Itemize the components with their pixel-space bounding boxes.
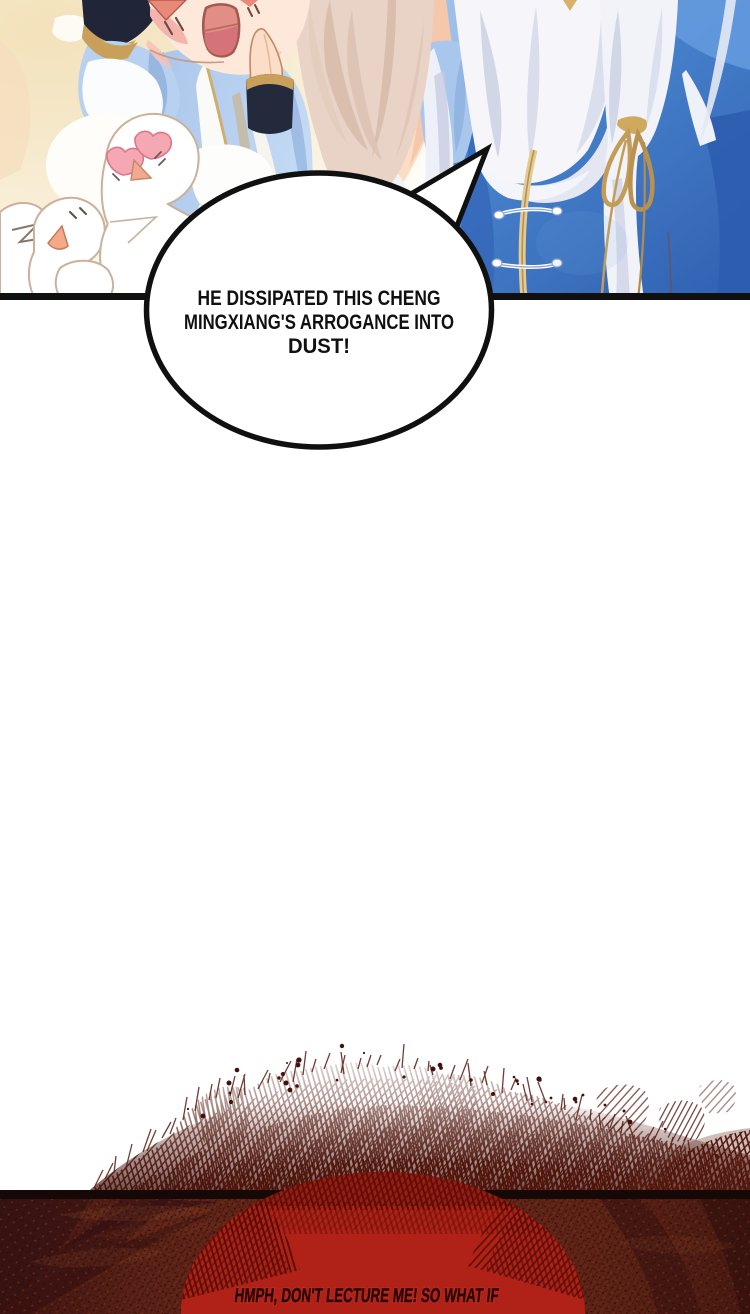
- svg-text:DUST!: DUST!: [288, 334, 350, 358]
- svg-text:HMPH, DON'T LECTURE ME! SO WHA: HMPH, DON'T LECTURE ME! SO WHAT IF: [233, 1285, 499, 1307]
- svg-text:MINGXIANG'S ARROGANCE INTO: MINGXIANG'S ARROGANCE INTO: [184, 310, 454, 334]
- svg-text:HE DISSIPATED THIS CHENG: HE DISSIPATED THIS CHENG: [198, 286, 441, 310]
